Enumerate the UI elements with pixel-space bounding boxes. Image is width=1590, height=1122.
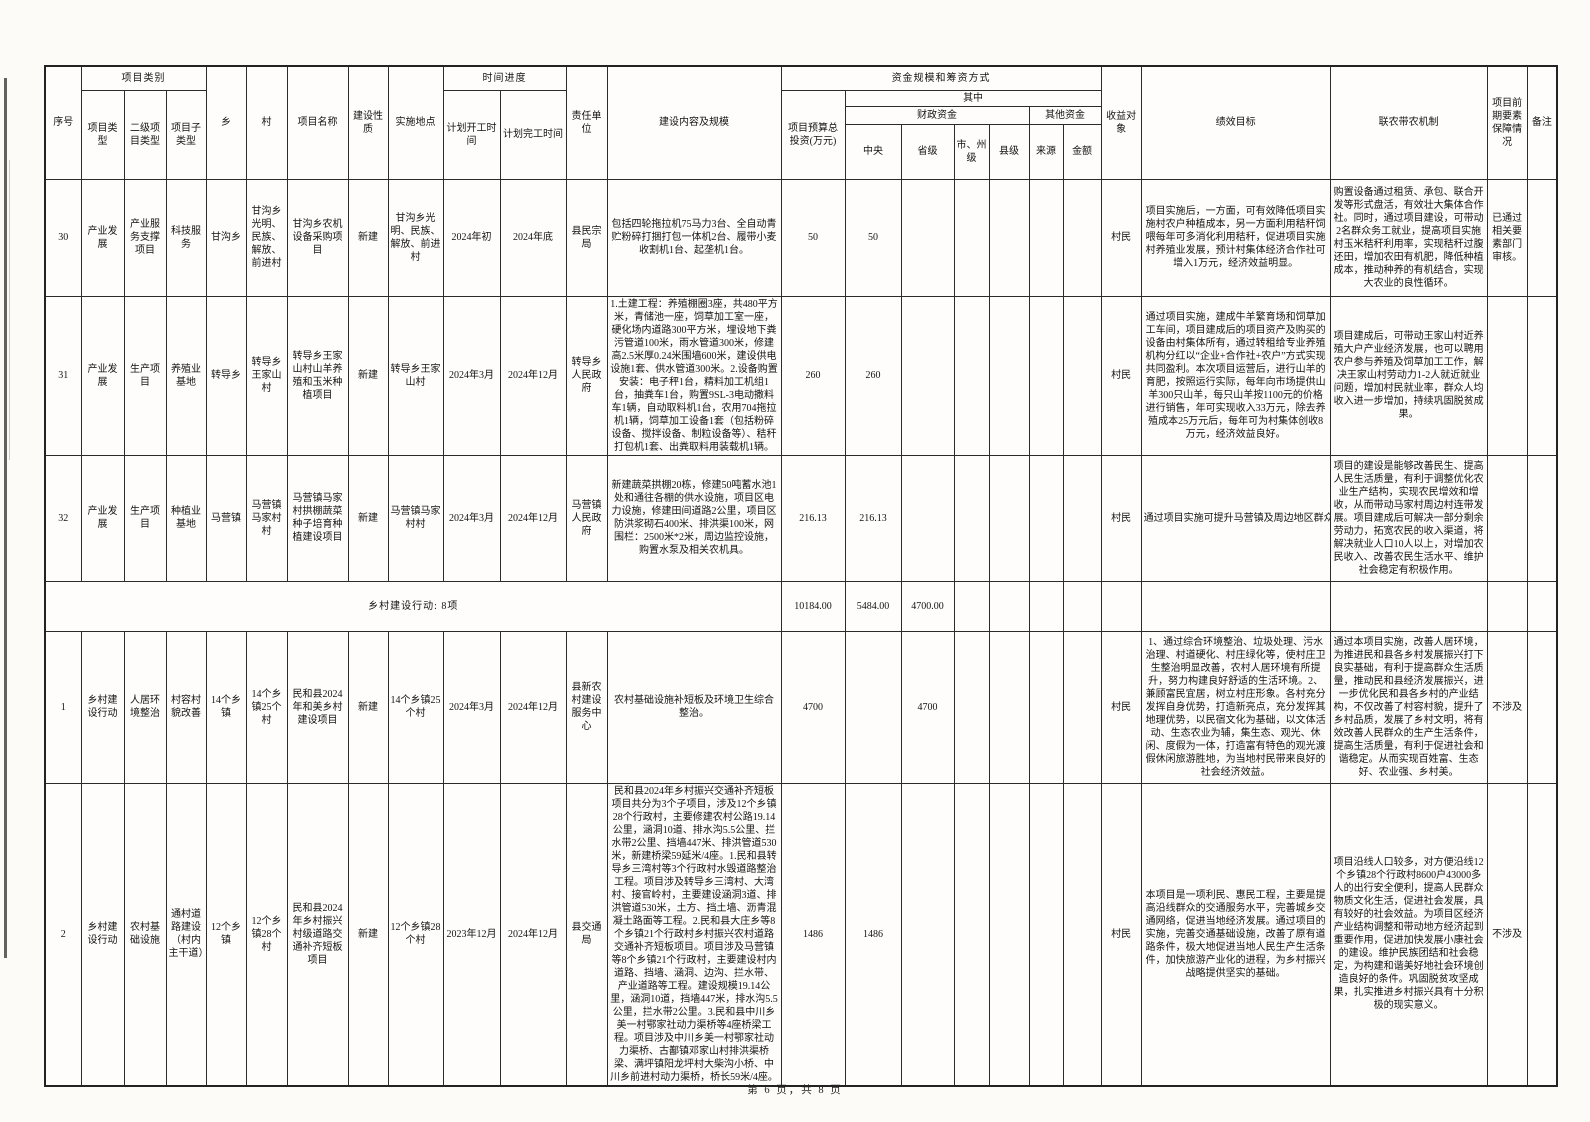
- cell-plan-finish: 2024年12月: [500, 783, 566, 1086]
- cell-responsible-unit: 县新农村建设服务中心: [566, 631, 607, 783]
- cell-central: 260: [845, 296, 901, 455]
- col-header-plan-start: 计划开工时间: [443, 90, 500, 179]
- col-header-remark: 备注: [1527, 66, 1557, 179]
- cell-provincial: 4700: [901, 631, 954, 783]
- cell-mechanism: 购置设备通过租赁、承包、联合开发等形式盘活，有效壮大集体合作社。同时，通过项目建…: [1330, 179, 1487, 296]
- cell-preparation: [1487, 455, 1527, 581]
- cell-content: 农村基础设施补短板及环境卫生综合整治。: [607, 631, 781, 783]
- section-total-source: [1029, 581, 1063, 631]
- cell-seq: 31: [45, 296, 81, 455]
- col-group-schedule: 时间进度: [443, 66, 566, 90]
- cell-provincial: [901, 455, 954, 581]
- section-total-central: 5484.00: [845, 581, 901, 631]
- cell-village: 马营镇马家村村: [246, 455, 287, 581]
- cell-county: [989, 783, 1029, 1086]
- cell-plan-start: 2024年3月: [443, 296, 500, 455]
- cell-mechanism: 项目的建设是能够改善民生、提高人民生活质量，有利于调整优化农业生产结构，实现农民…: [1330, 455, 1487, 581]
- project-plan-table: 序号 项目类别 乡 村 项目名称 建设性质 实施地点 时间进度 责任单位 建设内…: [44, 65, 1558, 1087]
- cell-city: [954, 455, 989, 581]
- section-total-remark: [1527, 581, 1557, 631]
- col-group-category: 项目类别: [81, 66, 206, 90]
- section-total-provincial: 4700.00: [901, 581, 954, 631]
- cell-city: [954, 296, 989, 455]
- cell-central: [845, 631, 901, 783]
- cell-sub-type: 科技服务: [166, 179, 206, 296]
- col-group-funding: 资金规模和筹资方式: [781, 66, 1101, 90]
- cell-remark: [1527, 631, 1557, 783]
- cell-sub-type: 通村道路建设（村内主干道）: [166, 783, 206, 1086]
- section-total-performance: [1141, 581, 1330, 631]
- section-total-budget: 10184.00: [781, 581, 845, 631]
- cell-seq: 32: [45, 455, 81, 581]
- cell-responsible-unit: 县交通局: [566, 783, 607, 1086]
- cell-village: 12个乡镇28个村: [246, 783, 287, 1086]
- cell-beneficiary: 村民: [1101, 296, 1141, 455]
- col-group-fiscal-funds: 财政资金: [845, 106, 1029, 124]
- cell-nature: 新建: [348, 455, 388, 581]
- cell-content: 包括四轮拖拉机75马力3台、全自动青贮粉碎打捆打包一体机2台、履带小麦收割机1台…: [607, 179, 781, 296]
- cell-plan-finish: 2024年12月: [500, 296, 566, 455]
- cell-plan-start: 2024年3月: [443, 631, 500, 783]
- cell-central: 1486: [845, 783, 901, 1086]
- cell-mechanism: 项目沿线人口较多，对方便沿线12个乡镇28个行政村8600户43000多人的出行…: [1330, 783, 1487, 1086]
- table-row: 32 产业发展 生产项目 种植业基地 马营镇 马营镇马家村村 马营镇马家村拱棚蔬…: [45, 455, 1557, 581]
- cell-sub-type: 种植业基地: [166, 455, 206, 581]
- col-header-city-level: 市、州级: [954, 124, 989, 179]
- cell-county: [989, 179, 1029, 296]
- col-header-performance: 绩效目标: [1141, 66, 1330, 179]
- cell-city: [954, 783, 989, 1086]
- cell-township: 12个乡镇: [206, 783, 246, 1086]
- cell-secondary-type: 生产项目: [124, 455, 166, 581]
- cell-township: 转导乡: [206, 296, 246, 455]
- cell-responsible-unit: 县民宗局: [566, 179, 607, 296]
- cell-plan-finish: 2024年底: [500, 179, 566, 296]
- cell-beneficiary: 村民: [1101, 179, 1141, 296]
- section-total-mechanism: [1330, 581, 1487, 631]
- cell-seq: 30: [45, 179, 81, 296]
- cell-project-type: 产业发展: [81, 179, 124, 296]
- section-total-row: 乡村建设行动: 8项 10184.00 5484.00 4700.00: [45, 581, 1557, 631]
- cell-location: 马营镇马家村村: [388, 455, 443, 581]
- col-header-sub-type: 项目子类型: [166, 90, 206, 179]
- section-total-preparation: [1487, 581, 1527, 631]
- section-total-beneficiary: [1101, 581, 1141, 631]
- col-group-including: 其中: [845, 90, 1101, 106]
- cell-township: 甘沟乡: [206, 179, 246, 296]
- cell-city: [954, 179, 989, 296]
- col-header-provincial: 省级: [901, 124, 954, 179]
- cell-remark: [1527, 783, 1557, 1086]
- col-header-mechanism: 联农带农机制: [1330, 66, 1487, 179]
- cell-project-name: 民和县2024年和美乡村建设项目: [287, 631, 348, 783]
- cell-plan-finish: 2024年12月: [500, 455, 566, 581]
- cell-performance: 项目实施后，一方面，可有效降低项目实施村农户种植成本，另一方面利用秸秆饲喂每年可…: [1141, 179, 1330, 296]
- col-header-secondary-type: 二级项目类型: [124, 90, 166, 179]
- header-row-group: 序号 项目类别 乡 村 项目名称 建设性质 实施地点 时间进度 责任单位 建设内…: [45, 66, 1557, 90]
- cell-project-name: 马营镇马家村拱棚蔬菜种子培育种植建设项目: [287, 455, 348, 581]
- cell-seq: 1: [45, 631, 81, 783]
- col-header-location: 实施地点: [388, 66, 443, 179]
- cell-provincial: [901, 296, 954, 455]
- cell-township: 马营镇: [206, 455, 246, 581]
- cell-central: 216.13: [845, 455, 901, 581]
- cell-amount: [1063, 179, 1101, 296]
- col-header-content: 建设内容及规模: [607, 66, 781, 179]
- cell-secondary-type: 人居环境整治: [124, 631, 166, 783]
- col-group-other-funds: 其他资金: [1029, 106, 1101, 124]
- cell-central: 50: [845, 179, 901, 296]
- cell-project-type: 产业发展: [81, 296, 124, 455]
- cell-project-name: 民和县2024年乡村振兴村级道路交通补齐短板项目: [287, 783, 348, 1086]
- cell-budget: 50: [781, 179, 845, 296]
- cell-project-type: 产业发展: [81, 455, 124, 581]
- col-header-county-level: 县级: [989, 124, 1029, 179]
- cell-plan-finish: 2024年12月: [500, 631, 566, 783]
- cell-plan-start: 2024年3月: [443, 455, 500, 581]
- table-row: 1 乡村建设行动 人居环境整治 村容村貌改善 14个乡镇 14个乡镇25个村 民…: [45, 631, 1557, 783]
- cell-source: [1029, 455, 1063, 581]
- cell-remark: [1527, 179, 1557, 296]
- cell-beneficiary: 村民: [1101, 631, 1141, 783]
- cell-content: 新建蔬菜拱棚20栋，修建50吨蓄水池1处和通往各棚的供水设施，项目区电力设施，修…: [607, 455, 781, 581]
- cell-budget: 260: [781, 296, 845, 455]
- cell-nature: 新建: [348, 296, 388, 455]
- cell-plan-start: 2024年初: [443, 179, 500, 296]
- section-total-county: [989, 581, 1029, 631]
- cell-source: [1029, 179, 1063, 296]
- cell-location: 转导乡王家山村: [388, 296, 443, 455]
- cell-nature: 新建: [348, 179, 388, 296]
- col-header-responsible-unit: 责任单位: [566, 66, 607, 179]
- cell-performance: 1、通过综合环境整治、垃圾处理、污水治理、村道硬化、村庄绿化等，使村庄卫生整治明…: [1141, 631, 1330, 783]
- table-row: 31 产业发展 生产项目 养殖业基地 转导乡 转导乡王家山村 转导乡王家山村山羊…: [45, 296, 1557, 455]
- col-header-project-type: 项目类型: [81, 90, 124, 179]
- cell-budget: 1486: [781, 783, 845, 1086]
- cell-responsible-unit: 转导乡人民政府: [566, 296, 607, 455]
- cell-location: 12个乡镇28个村: [388, 783, 443, 1086]
- cell-village: 转导乡王家山村: [246, 296, 287, 455]
- cell-source: [1029, 631, 1063, 783]
- cell-preparation: 已通过相关要素部门审核。: [1487, 179, 1527, 296]
- cell-village: 14个乡镇25个村: [246, 631, 287, 783]
- section-total-label: 乡村建设行动: 8项: [45, 581, 781, 631]
- section-total-amount: [1063, 581, 1101, 631]
- cell-content: 民和县2024年乡村振兴交通补齐短板项目共分为3个子项目，涉及12个乡镇28个行…: [607, 783, 781, 1086]
- cell-beneficiary: 村民: [1101, 455, 1141, 581]
- cell-project-type: 乡村建设行动: [81, 631, 124, 783]
- cell-responsible-unit: 马营镇人民政府: [566, 455, 607, 581]
- cell-sub-type: 养殖业基地: [166, 296, 206, 455]
- cell-provincial: [901, 179, 954, 296]
- cell-secondary-type: 产业服务支撑项目: [124, 179, 166, 296]
- cell-content: 1.土建工程：养殖棚圈3座，共480平方米，青储池一座，饲草加工室一座，硬化场内…: [607, 296, 781, 455]
- cell-seq: 2: [45, 783, 81, 1086]
- cell-beneficiary: 村民: [1101, 783, 1141, 1086]
- cell-preparation: [1487, 296, 1527, 455]
- cell-secondary-type: 农村基础设施: [124, 783, 166, 1086]
- cell-location: 14个乡镇25个村: [388, 631, 443, 783]
- cell-remark: [1527, 455, 1557, 581]
- cell-plan-start: 2023年12月: [443, 783, 500, 1086]
- col-header-preparation: 项目前期要素保障情况: [1487, 66, 1527, 179]
- cell-nature: 新建: [348, 631, 388, 783]
- cell-village: 甘沟乡光明、民族、解放、前进村: [246, 179, 287, 296]
- cell-mechanism: 通过本项目实施，改善人居环境，为推进民和县各乡村发展振兴打下良实基础，有利于提高…: [1330, 631, 1487, 783]
- cell-amount: [1063, 631, 1101, 783]
- cell-source: [1029, 296, 1063, 455]
- col-header-nature: 建设性质: [348, 66, 388, 179]
- col-header-seq: 序号: [45, 66, 81, 179]
- cell-amount: [1063, 296, 1101, 455]
- cell-project-type: 乡村建设行动: [81, 783, 124, 1086]
- cell-amount: [1063, 783, 1101, 1086]
- cell-performance: 本项目是一项利民、惠民工程，主要是提高沿线群众的交通服务水平，完善城乡交通网络，…: [1141, 783, 1330, 1086]
- cell-budget: 4700: [781, 631, 845, 783]
- cell-performance: 通过项目实施，建成牛羊繁育场和饲草加工车间，项目建成后的项目资产及购买的设备由村…: [1141, 296, 1330, 455]
- cell-remark: [1527, 296, 1557, 455]
- cell-budget: 216.13: [781, 455, 845, 581]
- cell-amount: [1063, 455, 1101, 581]
- cell-city: [954, 631, 989, 783]
- cell-preparation: 不涉及: [1487, 783, 1527, 1086]
- cell-county: [989, 631, 1029, 783]
- col-header-central: 中央: [845, 124, 901, 179]
- table-row: 30 产业发展 产业服务支撑项目 科技服务 甘沟乡 甘沟乡光明、民族、解放、前进…: [45, 179, 1557, 296]
- cell-sub-type: 村容村貌改善: [166, 631, 206, 783]
- scan-edge-artifact: [9, 160, 10, 460]
- cell-nature: 新建: [348, 783, 388, 1086]
- cell-preparation: 不涉及: [1487, 631, 1527, 783]
- cell-county: [989, 455, 1029, 581]
- col-header-beneficiary: 收益对象: [1101, 66, 1141, 179]
- cell-secondary-type: 生产项目: [124, 296, 166, 455]
- cell-provincial: [901, 783, 954, 1086]
- col-header-village: 村: [246, 66, 287, 179]
- cell-location: 甘沟乡光明、民族、解放、前进村: [388, 179, 443, 296]
- col-header-project-name: 项目名称: [287, 66, 348, 179]
- cell-township: 14个乡镇: [206, 631, 246, 783]
- cell-county: [989, 296, 1029, 455]
- cell-project-name: 转导乡王家山村山羊养殖和玉米种植项目: [287, 296, 348, 455]
- page-footer: 第 6 页，共 8 页: [0, 1082, 1590, 1097]
- cell-performance: 通过项目实施可提升马营镇及周边地区群众: [1141, 455, 1330, 581]
- scan-edge-artifact: [4, 78, 7, 958]
- col-header-amount: 金额: [1063, 124, 1101, 179]
- col-header-township: 乡: [206, 66, 246, 179]
- col-header-budget-total: 项目预算总投资(万元): [781, 90, 845, 179]
- section-total-city: [954, 581, 989, 631]
- col-header-plan-finish: 计划完工时间: [500, 90, 566, 179]
- scanned-page: 序号 项目类别 乡 村 项目名称 建设性质 实施地点 时间进度 责任单位 建设内…: [0, 0, 1590, 1122]
- cell-mechanism: 项目建成后，可带动王家山村近养殖大户产业经济发展，也可以聘用农户参与养殖及饲草加…: [1330, 296, 1487, 455]
- table-row: 2 乡村建设行动 农村基础设施 通村道路建设（村内主干道） 12个乡镇 12个乡…: [45, 783, 1557, 1086]
- cell-project-name: 甘沟乡农机设备采购项目: [287, 179, 348, 296]
- cell-source: [1029, 783, 1063, 1086]
- col-header-source: 来源: [1029, 124, 1063, 179]
